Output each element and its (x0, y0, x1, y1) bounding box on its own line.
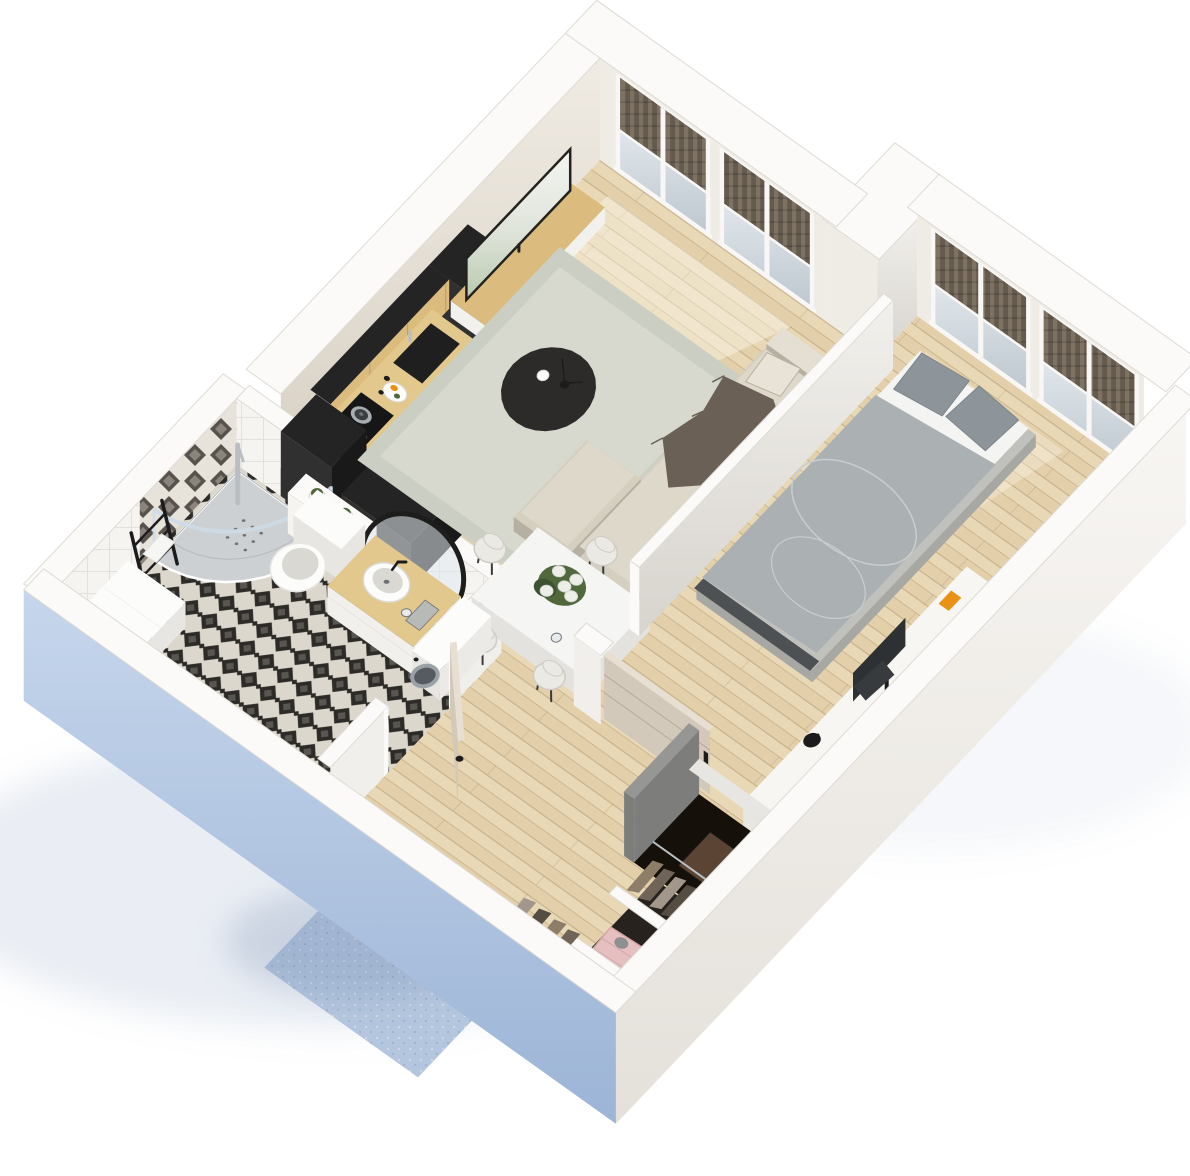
bedroom-window-2-mullion (1087, 341, 1092, 436)
bouquet-bloom-0 (552, 566, 565, 577)
bouquet-bloom-2 (565, 591, 578, 602)
branch-2 (565, 382, 583, 383)
cabinet-door-seam-0 (445, 283, 446, 312)
living-window-2-mullion (764, 181, 769, 276)
living-window-1-mullion (661, 107, 666, 202)
toothbrush-cup (401, 609, 411, 617)
vase-white (537, 370, 549, 380)
shower-drain-00 (242, 519, 246, 522)
partition-wall-endcap (630, 561, 639, 637)
water-glass (551, 633, 561, 642)
apartment-floorplan-stage (0, 0, 1190, 1176)
sink-drain (384, 580, 390, 584)
bouquet-bloom-3 (540, 585, 553, 596)
floor-plan-3d-render (0, 0, 1190, 1176)
bouquet-bloom-4 (558, 581, 571, 592)
shower-drain-20 (259, 532, 263, 535)
shower-drain-21 (252, 540, 256, 543)
shower-drain-22 (244, 549, 248, 552)
hall-divider-wall-side-v (624, 792, 634, 864)
washer-button (414, 658, 419, 662)
shower-drain-11 (243, 534, 247, 537)
bathroom-door-handle (456, 756, 464, 762)
bouquet-bloom-1 (570, 574, 583, 585)
shower-drain-12 (235, 542, 239, 545)
bedroom-window-1-mullion (978, 263, 983, 358)
shower-drain-02 (226, 536, 230, 539)
bathroom-doorframe-2 (384, 706, 389, 777)
